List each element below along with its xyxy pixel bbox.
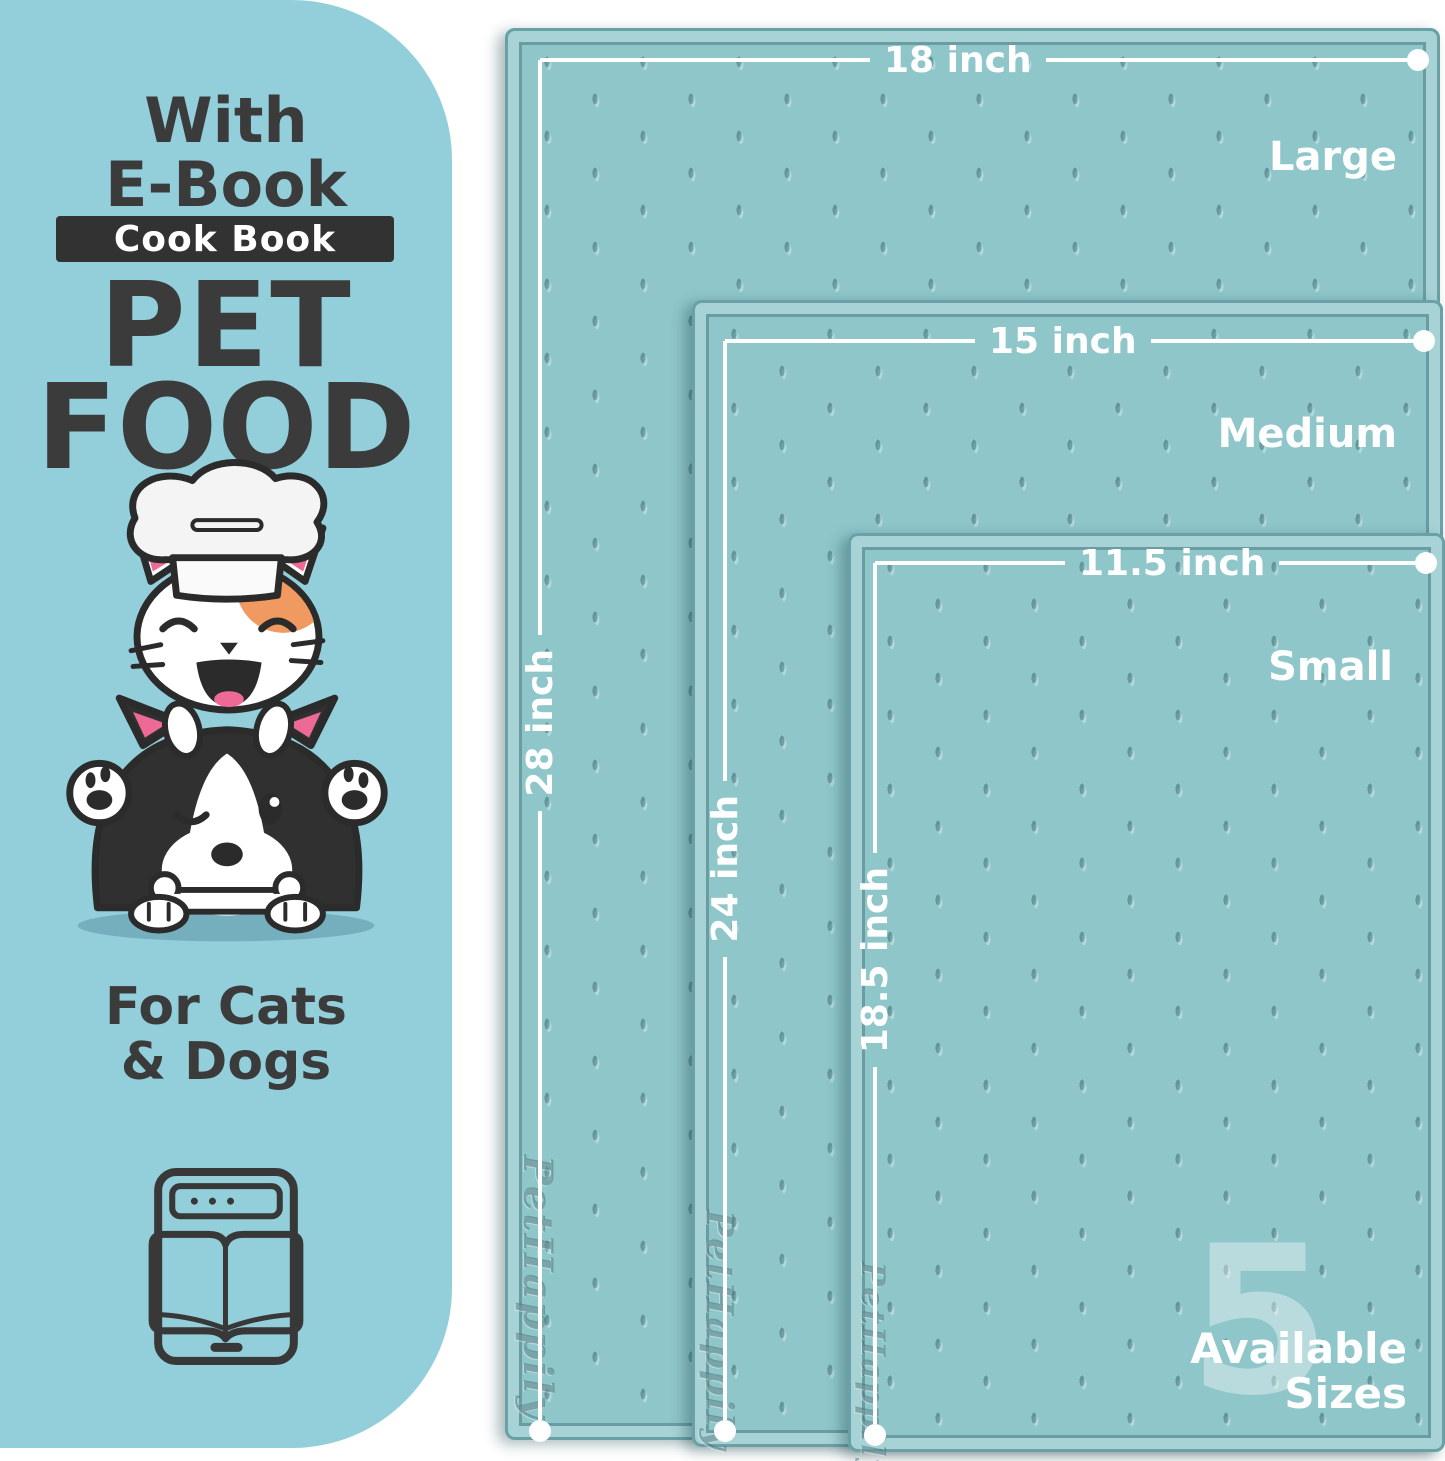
ebook-tablet-svg <box>138 1164 314 1370</box>
audience-line1: For Cats <box>0 980 452 1035</box>
dim-width-medium-label: 15 inch <box>989 321 1137 362</box>
dim-endpoint-dot <box>1413 330 1435 352</box>
husky-dog <box>70 698 384 930</box>
size-label-medium: Medium <box>1218 411 1397 457</box>
cat-dog-chef-svg <box>48 458 404 958</box>
cat-dog-chef-illustration <box>48 458 404 958</box>
dim-height-medium: 24 inch <box>703 341 747 1442</box>
dim-line-segment <box>1151 339 1413 343</box>
dim-endpoint-dot <box>529 1420 551 1442</box>
dim-height-large-label: 28 inch <box>520 649 561 797</box>
cat-chef <box>130 463 331 710</box>
dim-line-segment <box>873 1067 877 1424</box>
ebook-callout-line1: With <box>0 84 452 157</box>
dim-endpoint-dot <box>864 1424 886 1446</box>
dim-line-segment <box>538 811 542 1420</box>
dim-height-large: 28 inch <box>518 60 562 1442</box>
left-info-panel: With E-Book Cook Book PET FOOD <box>0 0 452 1448</box>
dim-line-segment <box>538 60 542 635</box>
audience-label: For Cats & Dogs <box>0 980 452 1089</box>
dim-line-segment <box>873 563 877 853</box>
dim-line-segment <box>723 341 727 781</box>
dim-width-large-label: 18 inch <box>884 40 1032 81</box>
dim-height-medium-label: 24 inch <box>705 795 746 943</box>
dim-line-segment <box>540 58 870 62</box>
available-word: Available <box>1190 1326 1407 1371</box>
dim-endpoint-dot <box>1415 552 1437 574</box>
cookbook-badge-label: Cook Book <box>114 219 336 260</box>
audience-line2: & Dogs <box>0 1035 452 1090</box>
dim-line-segment <box>1279 561 1415 565</box>
dim-width-small: 11.5 inch <box>875 541 1437 585</box>
dim-line-segment <box>723 957 727 1420</box>
dim-width-small-label: 11.5 inch <box>1079 543 1265 584</box>
available-sizes-label: Available Sizes <box>1190 1326 1407 1417</box>
dim-height-small: 18.5 inch <box>853 563 897 1446</box>
dim-line-segment <box>1046 58 1407 62</box>
dim-line-segment <box>725 339 975 343</box>
dim-endpoint-dot <box>714 1420 736 1442</box>
dim-height-small-label: 18.5 inch <box>855 867 896 1053</box>
size-label-small: Small <box>1268 644 1393 690</box>
sizes-word: Sizes <box>1190 1371 1407 1416</box>
size-label-large: Large <box>1269 134 1397 180</box>
dim-width-medium: 15 inch <box>725 319 1435 363</box>
dim-width-large: 18 inch <box>540 38 1429 82</box>
dim-line-segment <box>875 561 1065 565</box>
ebook-tablet-icon <box>138 1164 314 1370</box>
product-image: With E-Book Cook Book PET FOOD <box>0 0 1445 1461</box>
ebook-callout-line2: E-Book <box>0 148 452 221</box>
dim-endpoint-dot <box>1407 49 1429 71</box>
